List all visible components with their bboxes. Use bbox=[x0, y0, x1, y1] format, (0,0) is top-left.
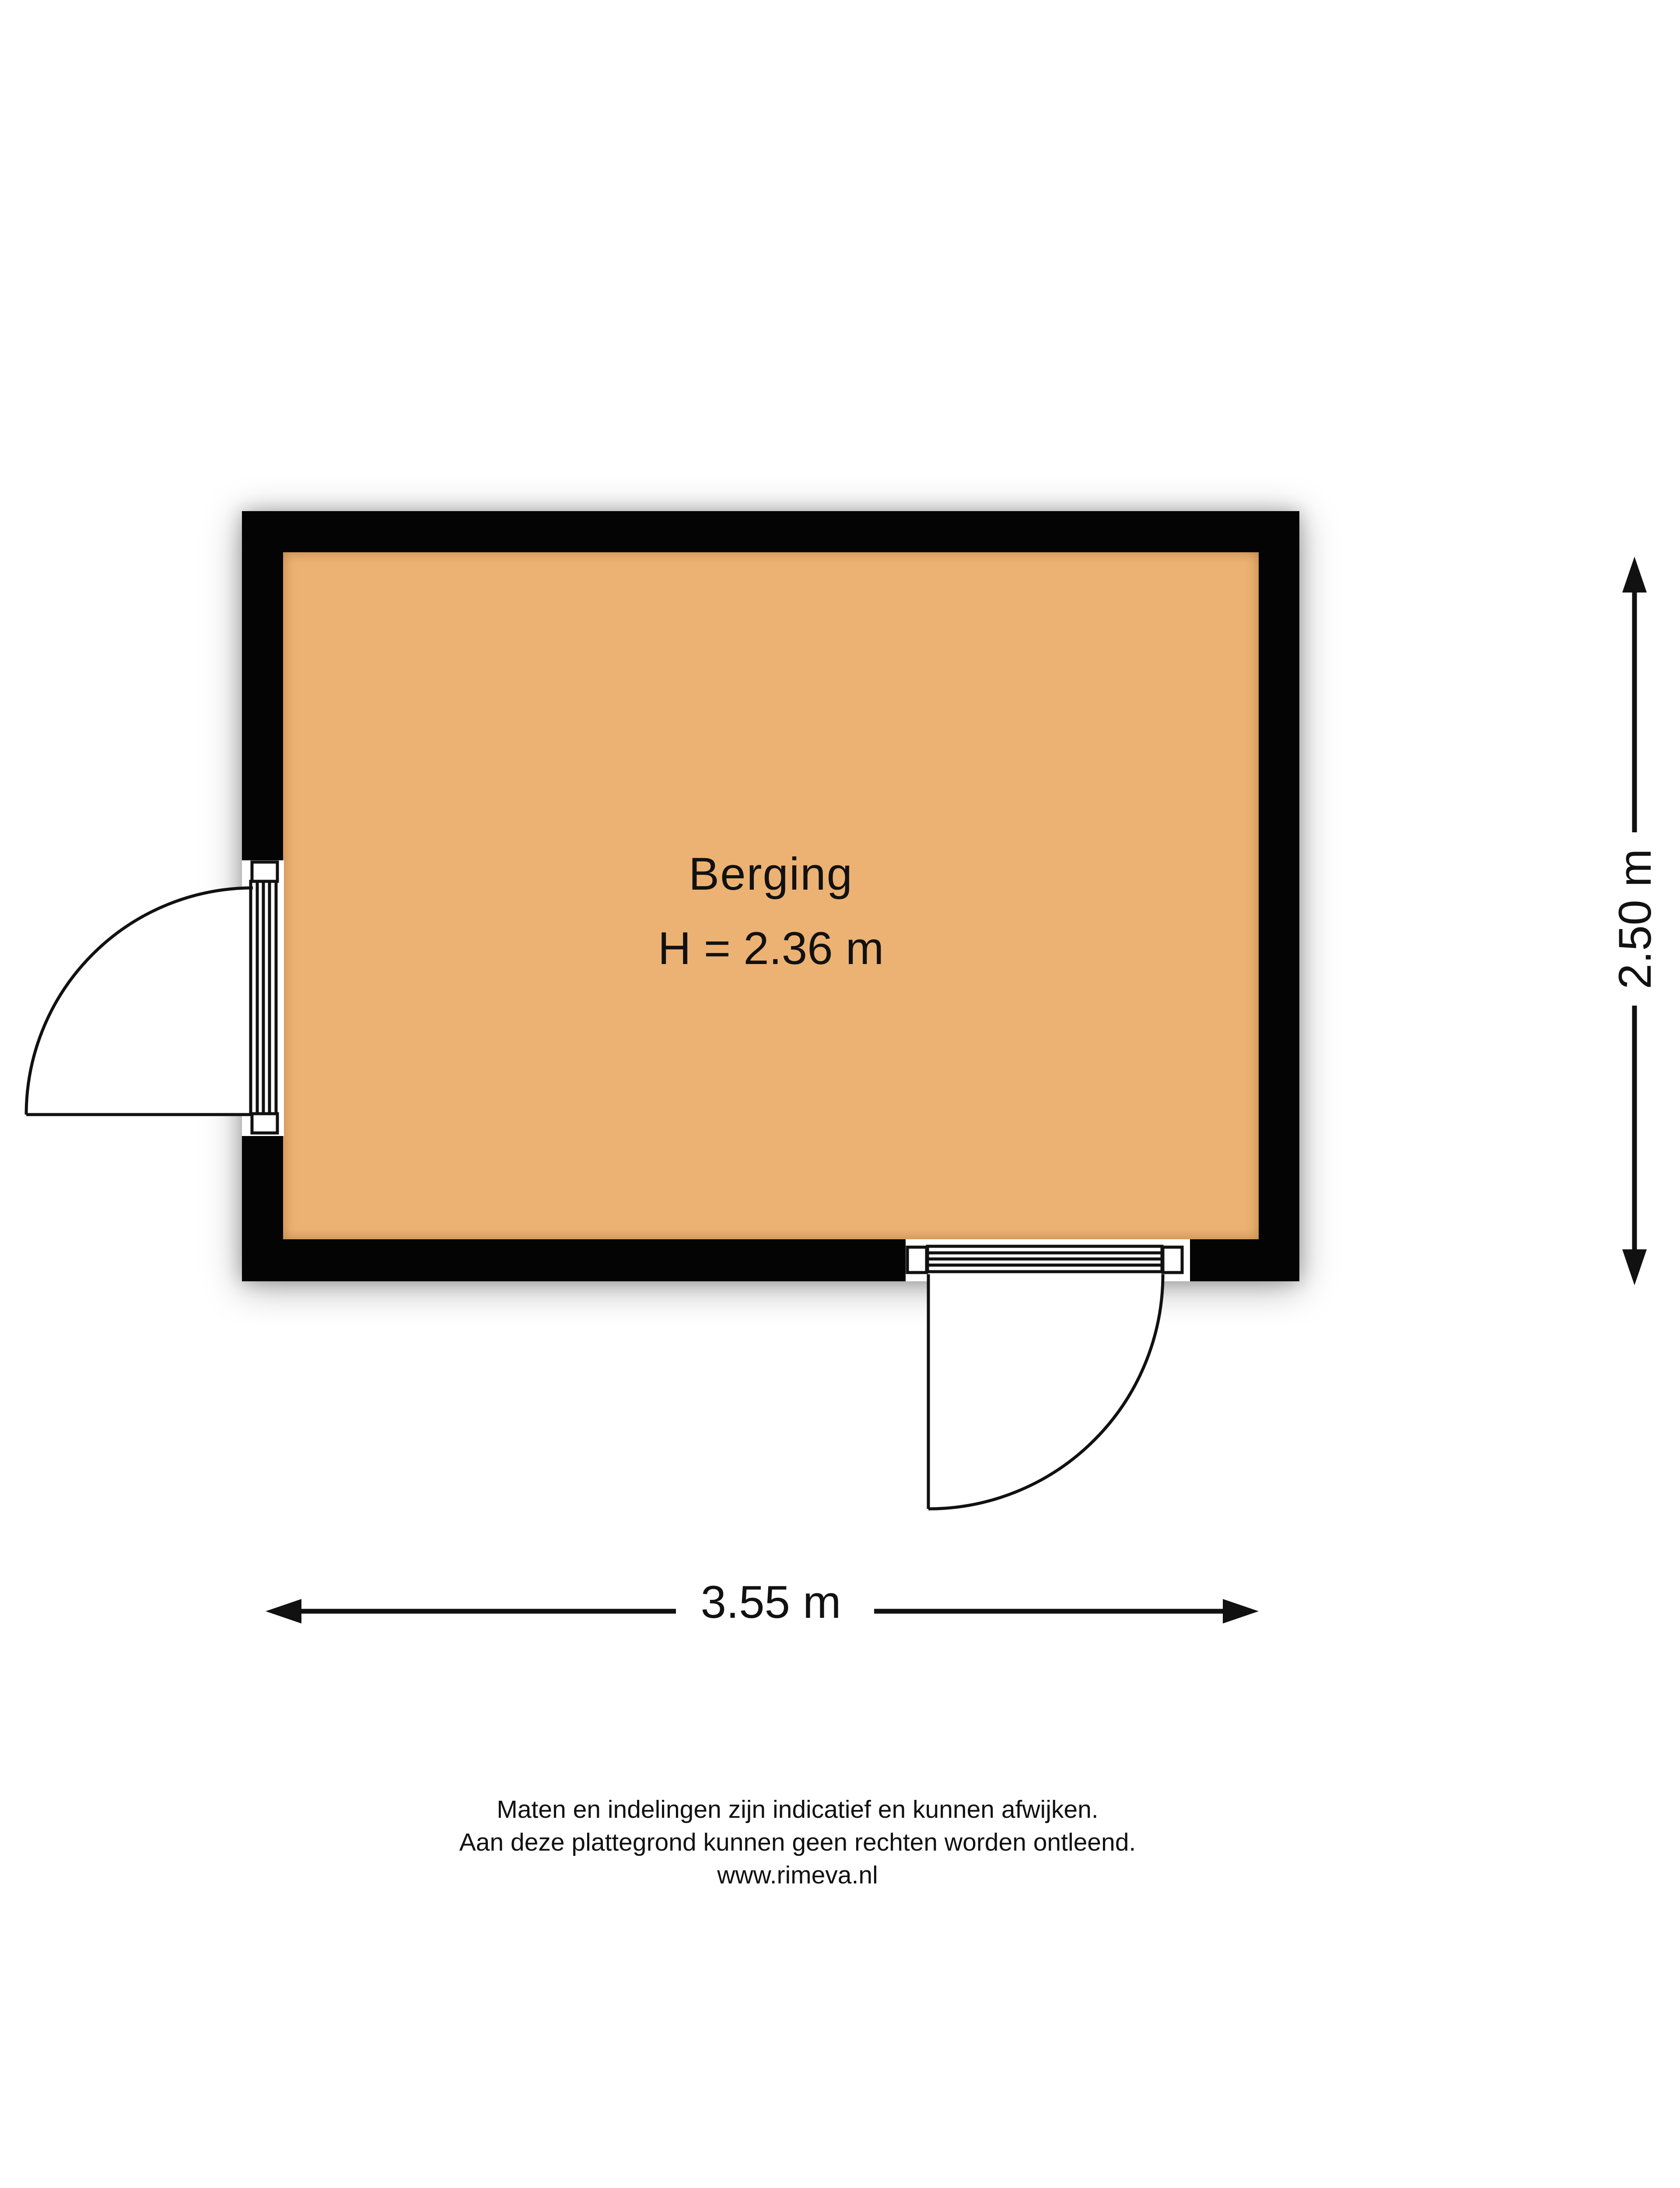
depth-dimension-label: 2.50 m bbox=[1606, 656, 1664, 1182]
bottom-door-jamb-left bbox=[907, 1247, 927, 1273]
depth-dimension-arrow-bottom bbox=[1622, 1249, 1647, 1285]
disclaimer: Maten en indelingen zijn indicatief en k… bbox=[360, 1793, 1235, 1892]
depth-dimension-arrow-top bbox=[1622, 557, 1647, 593]
left-door-swing-area bbox=[26, 888, 253, 1115]
disclaimer-website: www.rimeva.nl bbox=[360, 1859, 1235, 1892]
width-dimension-arrow-left bbox=[266, 1599, 301, 1623]
disclaimer-line-1: Maten en indelingen zijn indicatief en k… bbox=[360, 1793, 1235, 1826]
bottom-door-swing-area bbox=[928, 1274, 1163, 1509]
disclaimer-line-2: Aan deze plattegrond kunnen geen rechten… bbox=[360, 1826, 1235, 1859]
ceiling-height-label: H = 2.36 m bbox=[508, 920, 1033, 978]
left-door-jamb-top bbox=[252, 862, 277, 881]
left-door-jamb-bottom bbox=[252, 1114, 277, 1133]
bottom-door-jamb-right bbox=[1163, 1247, 1182, 1273]
width-dimension-label: 3.55 m bbox=[552, 1574, 990, 1631]
floorplan-canvas: Berging H = 2.36 m 3.55 m 2.50 m Maten e… bbox=[0, 0, 1680, 2188]
width-dimension-arrow-right bbox=[1223, 1599, 1259, 1623]
room-name-label: Berging bbox=[508, 845, 1033, 903]
